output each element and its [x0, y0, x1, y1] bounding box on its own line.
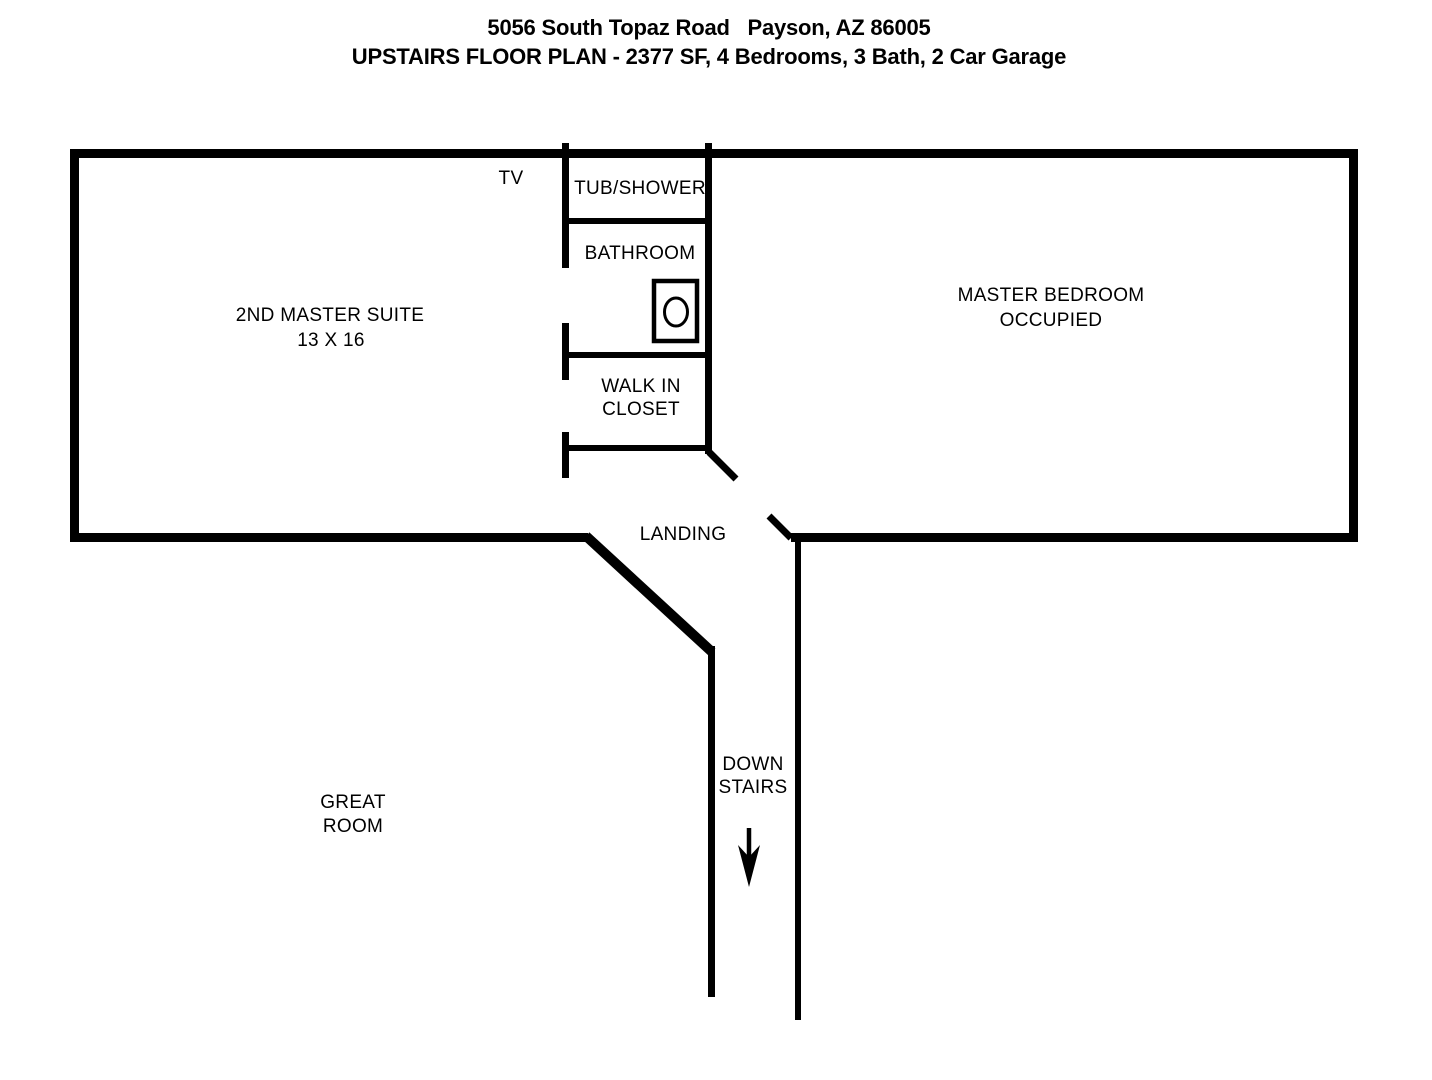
label-walk-in-closet-line1: WALK IN: [601, 376, 681, 397]
wall-closet-top: [562, 352, 712, 358]
wall-bottom-right: [791, 533, 1358, 542]
door-swing-closet: [709, 452, 736, 479]
room-labels: TV TUB/SHOWER BATHROOM WALK IN CLOSET 2N…: [236, 168, 1145, 837]
toilet-icon: [654, 281, 697, 341]
wall-stairs-right: [795, 540, 801, 1020]
wall-bath-left-upper: [562, 143, 569, 268]
wall-bath-left-lower: [562, 432, 569, 478]
label-walk-in-closet-line2: CLOSET: [602, 399, 680, 420]
label-tv: TV: [499, 168, 524, 189]
label-tub-shower: TUB/SHOWER: [574, 178, 706, 199]
label-master-bedroom-status: OCCUPIED: [1000, 310, 1103, 331]
label-second-master-suite: 2ND MASTER SUITE: [236, 305, 425, 326]
wall-left: [70, 149, 79, 542]
down-arrow-icon: [738, 828, 760, 887]
wall-landing-diagonal: [586, 536, 712, 652]
wall-bath-right: [705, 143, 712, 454]
floor-plan: TV TUB/SHOWER BATHROOM WALK IN CLOSET 2N…: [0, 0, 1432, 1080]
label-down-stairs-line2: STAIRS: [718, 777, 787, 798]
wall-top: [70, 149, 1358, 158]
wall-bath-left-mid: [562, 323, 569, 380]
label-master-bedroom: MASTER BEDROOM: [958, 285, 1145, 306]
label-down-stairs-line1: DOWN: [722, 754, 783, 775]
wall-bottom-left: [70, 533, 588, 542]
wall-stairs-left: [708, 646, 715, 997]
label-great-room-line1: GREAT: [320, 792, 386, 813]
wall-right: [1349, 149, 1358, 542]
label-great-room-line2: ROOM: [323, 816, 383, 837]
wall-tub-divider: [562, 218, 712, 224]
walls: [70, 143, 1358, 1020]
label-second-master-dimensions: 13 X 16: [297, 330, 365, 351]
label-bathroom: BATHROOM: [585, 243, 696, 264]
wall-closet-bottom: [562, 445, 712, 451]
door-swing-master-bedroom: [769, 516, 791, 538]
label-landing: LANDING: [640, 524, 727, 545]
